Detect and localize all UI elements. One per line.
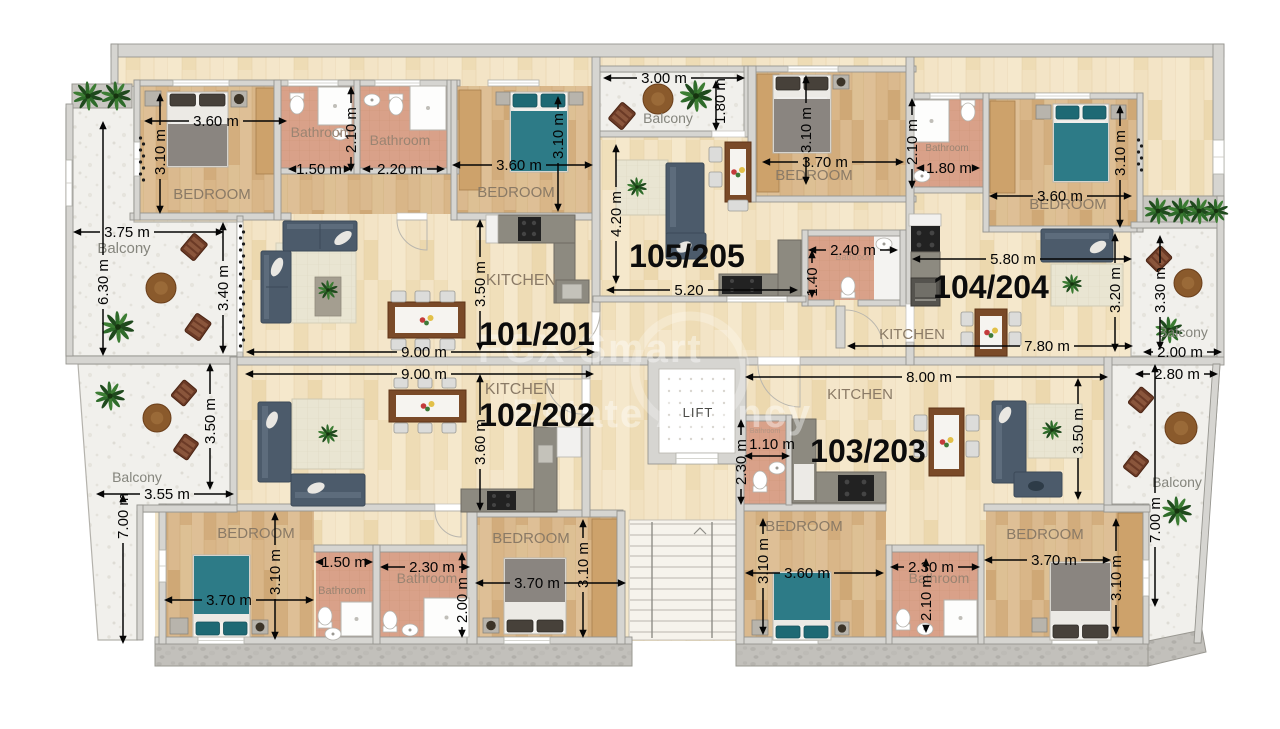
svg-text:3.10 m: 3.10 m — [575, 542, 592, 588]
svg-text:8.00 m: 8.00 m — [906, 369, 952, 386]
svg-text:BEDROOM: BEDROOM — [217, 525, 295, 542]
svg-text:7.80 m: 7.80 m — [1024, 338, 1070, 355]
svg-text:3.10 m: 3.10 m — [152, 129, 169, 175]
svg-text:3.40 m: 3.40 m — [215, 265, 232, 311]
svg-text:105/205: 105/205 — [629, 238, 745, 274]
svg-text:3.10 m: 3.10 m — [550, 113, 567, 159]
svg-text:6.30 m: 6.30 m — [95, 259, 112, 305]
svg-text:BEDROOM: BEDROOM — [477, 184, 555, 201]
svg-text:3.70 m: 3.70 m — [206, 592, 252, 609]
svg-text:3.20 m: 3.20 m — [1107, 267, 1124, 313]
svg-text:103/203: 103/203 — [810, 433, 926, 469]
svg-text:9.00 m: 9.00 m — [401, 366, 447, 383]
svg-text:Balcony: Balcony — [97, 240, 151, 257]
svg-text:BEDROOM: BEDROOM — [765, 518, 843, 535]
svg-text:BEDROOM: BEDROOM — [173, 186, 251, 203]
svg-text:Bathroom: Bathroom — [370, 132, 431, 148]
svg-text:2.30 m: 2.30 m — [733, 439, 750, 485]
svg-text:2.30 m: 2.30 m — [908, 559, 954, 576]
svg-text:Bathroom: Bathroom — [925, 143, 968, 154]
svg-text:3.70 m: 3.70 m — [802, 154, 848, 171]
svg-text:7.00 m: 7.00 m — [115, 493, 132, 539]
svg-text:1.40: 1.40 — [804, 267, 821, 296]
svg-text:1.80 m: 1.80 m — [712, 78, 729, 124]
svg-text:2.00 m: 2.00 m — [1157, 344, 1203, 361]
svg-text:5.20: 5.20 — [674, 282, 703, 299]
svg-text:3.10 m: 3.10 m — [798, 107, 815, 153]
svg-text:3.70 m: 3.70 m — [1031, 552, 1077, 569]
svg-text:3.00 m: 3.00 m — [641, 70, 687, 87]
svg-text:3.30 m: 3.30 m — [1152, 267, 1169, 313]
svg-text:2.40 m: 2.40 m — [830, 242, 876, 259]
svg-text:KITCHEN: KITCHEN — [879, 326, 945, 343]
svg-text:Bathroom: Bathroom — [750, 428, 781, 435]
svg-text:3.60 m: 3.60 m — [472, 419, 489, 465]
svg-text:3.70 m: 3.70 m — [514, 575, 560, 592]
svg-text:3.55 m: 3.55 m — [144, 486, 190, 503]
svg-text:Balcony: Balcony — [1158, 324, 1208, 340]
svg-text:101/201: 101/201 — [479, 316, 595, 352]
svg-text:2.20 m: 2.20 m — [377, 161, 423, 178]
svg-text:2.10 m: 2.10 m — [918, 575, 935, 621]
svg-text:3.50 m: 3.50 m — [1070, 408, 1087, 454]
svg-text:3.10 m: 3.10 m — [1112, 130, 1129, 176]
svg-text:2.10 m: 2.10 m — [904, 119, 921, 165]
svg-text:5.80 m: 5.80 m — [990, 251, 1036, 268]
svg-text:3.60 m: 3.60 m — [193, 113, 239, 130]
svg-text:3.10 m: 3.10 m — [267, 549, 284, 595]
svg-text:LIFT: LIFT — [683, 405, 714, 420]
svg-text:Balcony: Balcony — [643, 110, 693, 126]
svg-text:3.10 m: 3.10 m — [1108, 555, 1125, 601]
svg-text:3.10 m: 3.10 m — [755, 538, 772, 584]
svg-text:3.50 m: 3.50 m — [472, 261, 489, 307]
svg-text:3.60 m: 3.60 m — [1037, 188, 1083, 205]
svg-text:1.80 m: 1.80 m — [926, 160, 972, 177]
svg-text:1.10 m: 1.10 m — [749, 436, 795, 453]
svg-text:102/202: 102/202 — [479, 397, 595, 433]
svg-text:4.20 m: 4.20 m — [608, 191, 625, 237]
svg-text:2.10 m: 2.10 m — [343, 107, 360, 153]
svg-text:3.60 m: 3.60 m — [496, 157, 542, 174]
svg-text:Bathroom: Bathroom — [318, 585, 366, 597]
svg-text:3.75 m: 3.75 m — [104, 224, 150, 241]
svg-text:2.00 m: 2.00 m — [454, 577, 471, 623]
svg-text:KITCHEN: KITCHEN — [827, 386, 893, 403]
svg-text:KITCHEN: KITCHEN — [486, 272, 556, 289]
svg-text:3.50 m: 3.50 m — [202, 398, 219, 444]
svg-text:BEDROOM: BEDROOM — [1006, 526, 1084, 543]
svg-text:Balcony: Balcony — [1152, 474, 1202, 490]
svg-text:KITCHEN: KITCHEN — [485, 381, 555, 398]
svg-text:7.00 m: 7.00 m — [1147, 497, 1164, 543]
svg-text:Balcony: Balcony — [112, 469, 162, 485]
svg-text:1.50 m: 1.50 m — [296, 161, 342, 178]
svg-text:3.60 m: 3.60 m — [784, 565, 830, 582]
svg-text:BEDROOM: BEDROOM — [492, 530, 570, 547]
svg-text:1.50 m: 1.50 m — [321, 554, 367, 571]
svg-text:104/204: 104/204 — [933, 269, 1049, 305]
svg-text:9.00 m: 9.00 m — [401, 344, 447, 361]
svg-text:2.80 m: 2.80 m — [1154, 366, 1200, 383]
svg-text:2.30 m: 2.30 m — [409, 559, 455, 576]
